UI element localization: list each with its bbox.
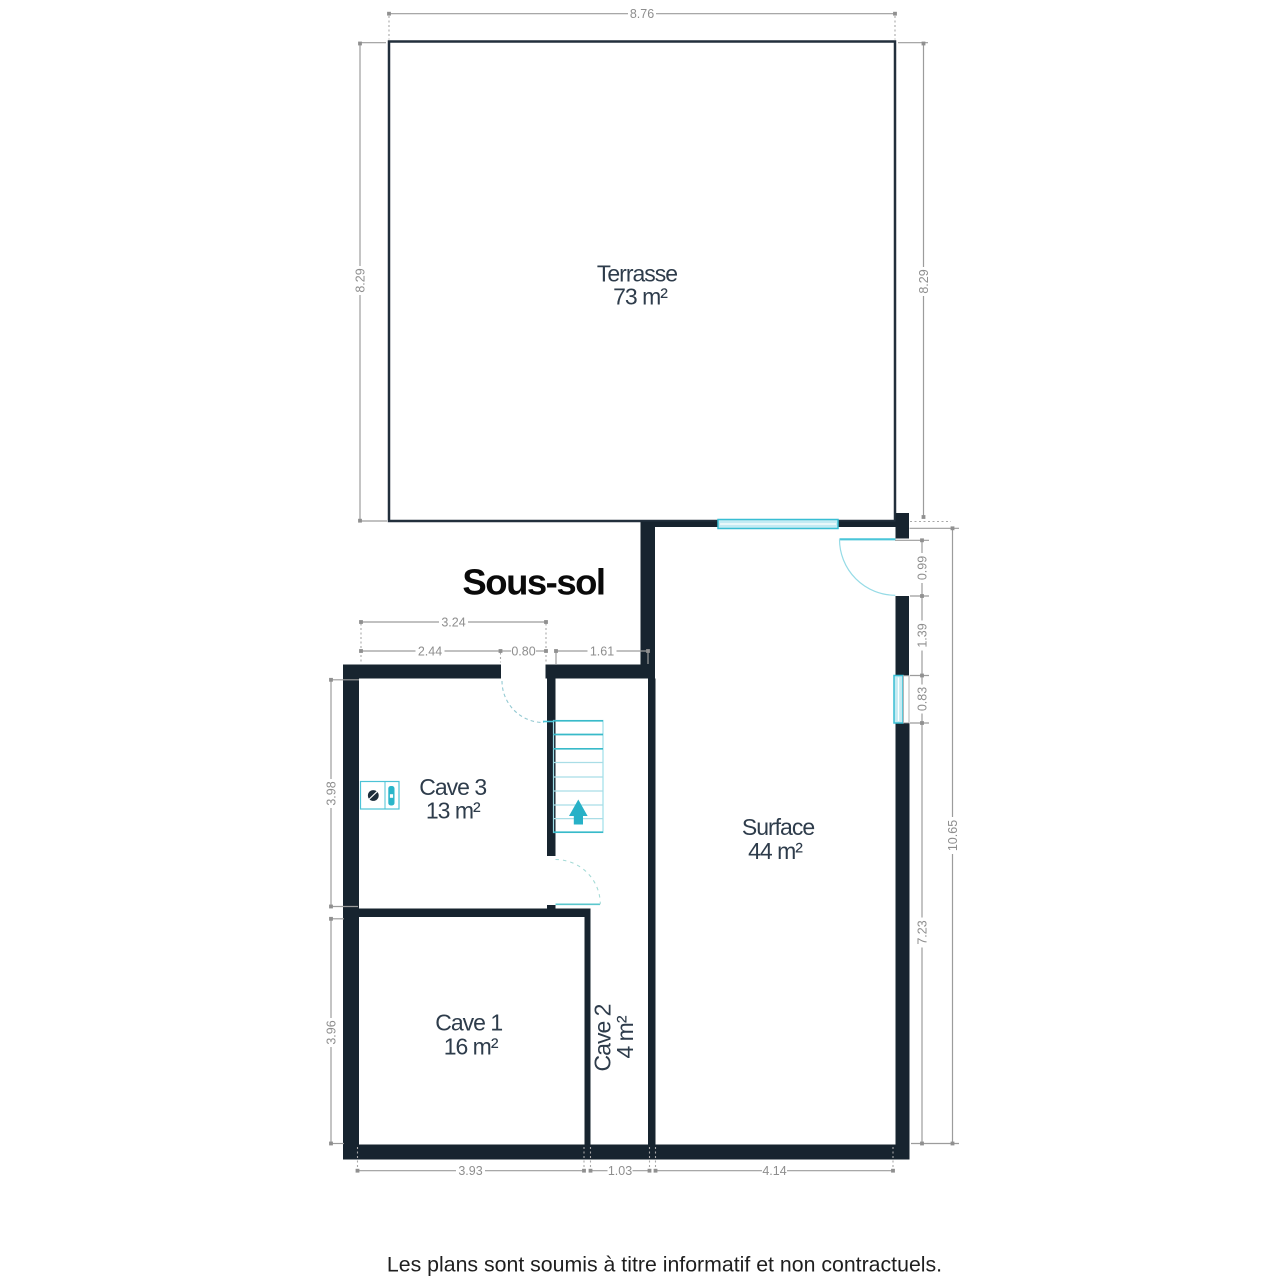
svg-text:44 m²: 44 m² [748, 838, 803, 864]
svg-text:1.61: 1.61 [590, 644, 614, 658]
svg-text:1.03: 1.03 [608, 1164, 632, 1178]
svg-text:2.44: 2.44 [418, 644, 442, 658]
svg-text:Cave 1: Cave 1 [435, 1010, 502, 1036]
svg-text:Sous-sol: Sous-sol [462, 562, 604, 603]
svg-text:4.14: 4.14 [762, 1164, 786, 1178]
svg-text:0.83: 0.83 [916, 687, 930, 711]
svg-text:13 m²: 13 m² [426, 798, 481, 824]
svg-text:3.93: 3.93 [458, 1164, 482, 1178]
svg-text:7.23: 7.23 [916, 920, 930, 944]
svg-text:0.99: 0.99 [916, 556, 930, 580]
svg-text:0.80: 0.80 [511, 644, 535, 658]
svg-text:3.24: 3.24 [441, 615, 465, 629]
svg-text:8.76: 8.76 [630, 7, 654, 21]
svg-text:10.65: 10.65 [946, 820, 960, 851]
svg-text:4 m²: 4 m² [612, 1015, 638, 1058]
svg-text:8.29: 8.29 [917, 269, 931, 293]
svg-text:Surface: Surface [742, 814, 814, 840]
svg-text:8.29: 8.29 [354, 268, 368, 292]
svg-text:3.96: 3.96 [325, 1020, 339, 1044]
svg-text:16 m²: 16 m² [444, 1034, 499, 1060]
svg-text:Les plans sont soumis à titre: Les plans sont soumis à titre informatif… [387, 1253, 942, 1277]
svg-text:Cave 3: Cave 3 [419, 774, 486, 800]
svg-text:1.39: 1.39 [916, 623, 930, 647]
svg-text:3.98: 3.98 [325, 781, 339, 805]
svg-text:73 m²: 73 m² [613, 284, 668, 310]
